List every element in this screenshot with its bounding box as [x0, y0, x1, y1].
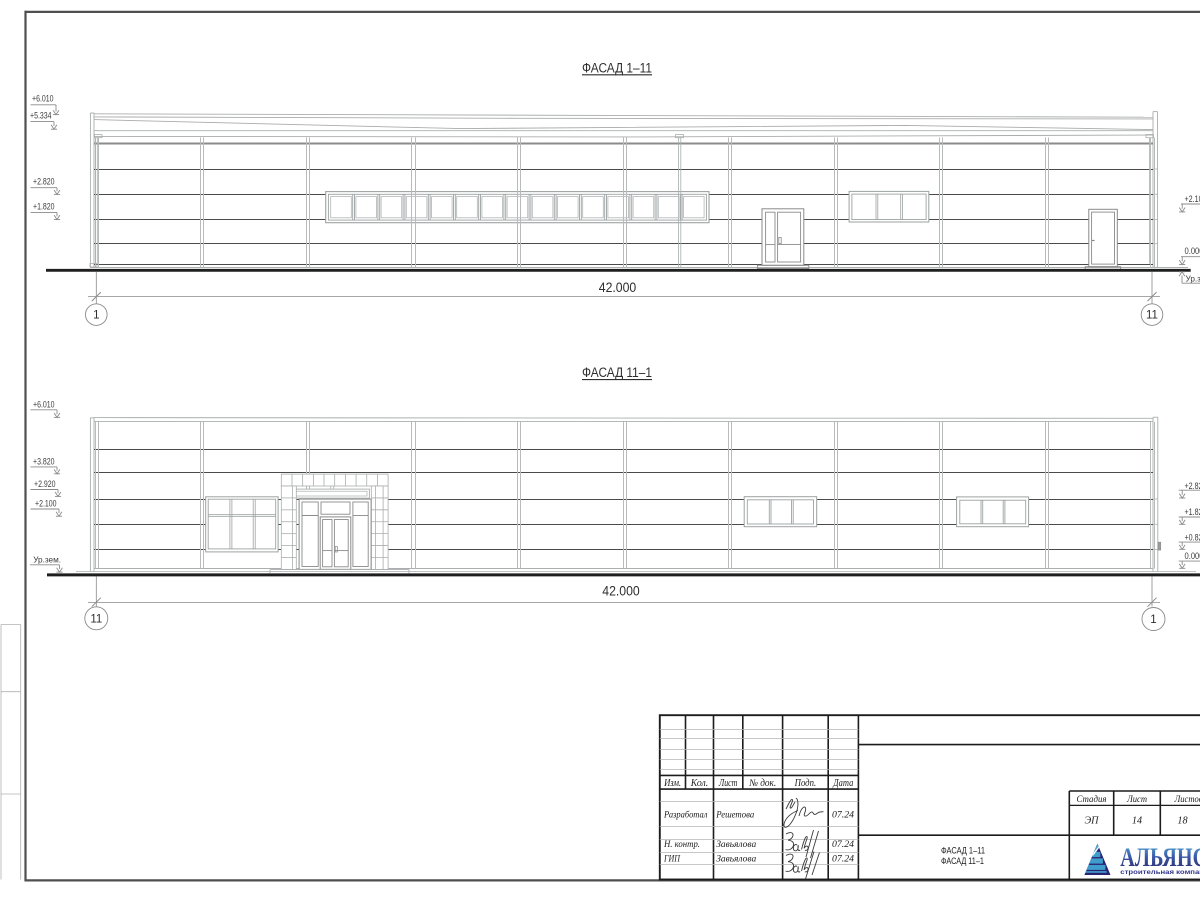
svg-text:Дата: Дата: [832, 778, 853, 789]
svg-text:Ур.зем.: Ур.зем.: [1186, 275, 1200, 284]
svg-text:07.24: 07.24: [832, 839, 854, 850]
svg-text:0.000: 0.000: [1185, 551, 1200, 561]
svg-text:18: 18: [1177, 816, 1187, 827]
svg-text:+5.334: +5.334: [30, 111, 52, 121]
svg-text:Решетова: Решетова: [715, 809, 754, 820]
svg-text:1: 1: [1150, 614, 1156, 626]
svg-text:ЭП: ЭП: [1084, 816, 1099, 827]
svg-text:11: 11: [1146, 310, 1158, 322]
svg-text:0.000: 0.000: [1185, 246, 1200, 256]
svg-text:ГИП: ГИП: [663, 853, 681, 864]
svg-text:+6.010: +6.010: [32, 94, 54, 104]
svg-text:Н. контр.: Н. контр.: [663, 839, 700, 850]
svg-text:+3.820: +3.820: [33, 456, 55, 466]
svg-text:42.000: 42.000: [602, 583, 640, 598]
svg-text:+1.820: +1.820: [33, 202, 55, 212]
svg-text:+6.010: +6.010: [33, 399, 55, 409]
svg-text:Изм.: Изм.: [663, 778, 681, 789]
svg-text:АЛЬЯНС: АЛЬЯНС: [1120, 843, 1200, 872]
svg-text:Подп.: Подп.: [794, 778, 816, 789]
svg-text:07.24: 07.24: [832, 809, 854, 820]
svg-text:+2.820: +2.820: [33, 177, 55, 187]
svg-text:07.24: 07.24: [832, 853, 854, 864]
svg-text:Кол.: Кол.: [690, 778, 708, 789]
svg-text:+2.100: +2.100: [1185, 194, 1200, 204]
svg-text:Листов: Листов: [1174, 794, 1200, 805]
svg-text:+2.920: +2.920: [34, 479, 56, 489]
svg-text:ФАСАД 11–1: ФАСАД 11–1: [582, 365, 652, 380]
svg-text:+1.820: +1.820: [1185, 507, 1200, 517]
svg-text:42.000: 42.000: [599, 280, 637, 295]
svg-text:14: 14: [1132, 816, 1142, 827]
svg-text:1: 1: [93, 310, 99, 322]
svg-text:ФАСАД 1–11: ФАСАД 1–11: [941, 846, 985, 856]
svg-text:Ур.зем.: Ур.зем.: [33, 556, 61, 565]
svg-text:ФАСАД 1–11: ФАСАД 1–11: [582, 60, 652, 75]
svg-text:ФАСАД 11–1: ФАСАД 11–1: [941, 856, 984, 866]
svg-text:№ док.: № док.: [748, 778, 776, 789]
svg-text:+0.820: +0.820: [1185, 532, 1200, 542]
svg-text:11: 11: [90, 614, 102, 626]
svg-text:Завьялова: Завьялова: [716, 839, 756, 850]
svg-text:строительная компания: строительная компания: [1120, 869, 1200, 876]
svg-text:Лист: Лист: [718, 778, 737, 789]
svg-text:Завьялова: Завьялова: [716, 853, 756, 864]
svg-text:+2.820: +2.820: [1185, 481, 1200, 491]
svg-text:Стадия: Стадия: [1077, 794, 1107, 805]
svg-text:Лист: Лист: [1126, 794, 1147, 805]
svg-text:+2.100: +2.100: [35, 499, 57, 509]
svg-text:Разработал: Разработал: [663, 809, 707, 820]
